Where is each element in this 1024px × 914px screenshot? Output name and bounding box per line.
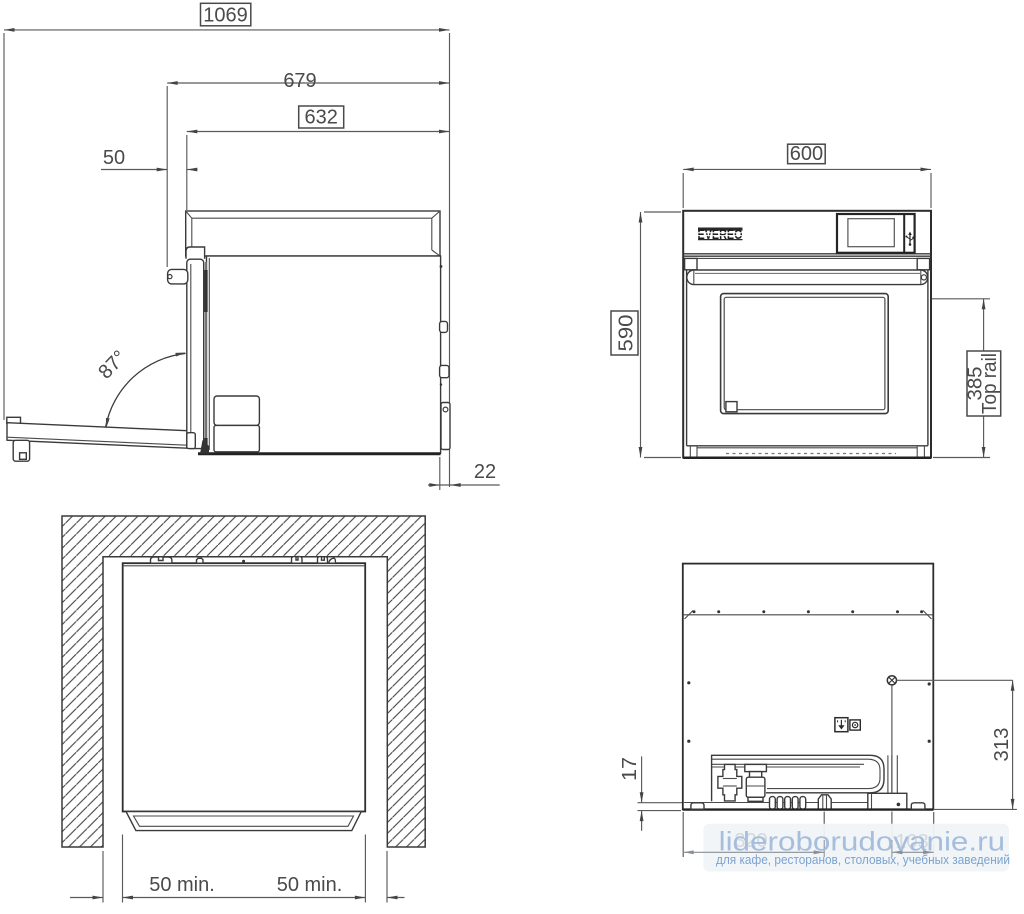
svg-text:679: 679 [283, 70, 316, 92]
svg-text:590: 590 [616, 315, 638, 352]
svg-text:Top rail: Top rail [979, 353, 1001, 414]
svg-text:50 min.: 50 min. [149, 874, 215, 896]
svg-text:50 min.: 50 min. [277, 874, 343, 896]
svg-text:1069: 1069 [203, 4, 248, 26]
svg-text:22: 22 [474, 461, 496, 483]
svg-text:17: 17 [619, 757, 641, 781]
svg-text:600: 600 [790, 143, 823, 165]
svg-text:50: 50 [103, 147, 125, 169]
svg-text:для кафе, ресторанов, столовых: для кафе, ресторанов, столовых, учебных … [716, 852, 1010, 867]
svg-text:632: 632 [305, 107, 338, 129]
svg-text:313: 313 [991, 728, 1013, 762]
